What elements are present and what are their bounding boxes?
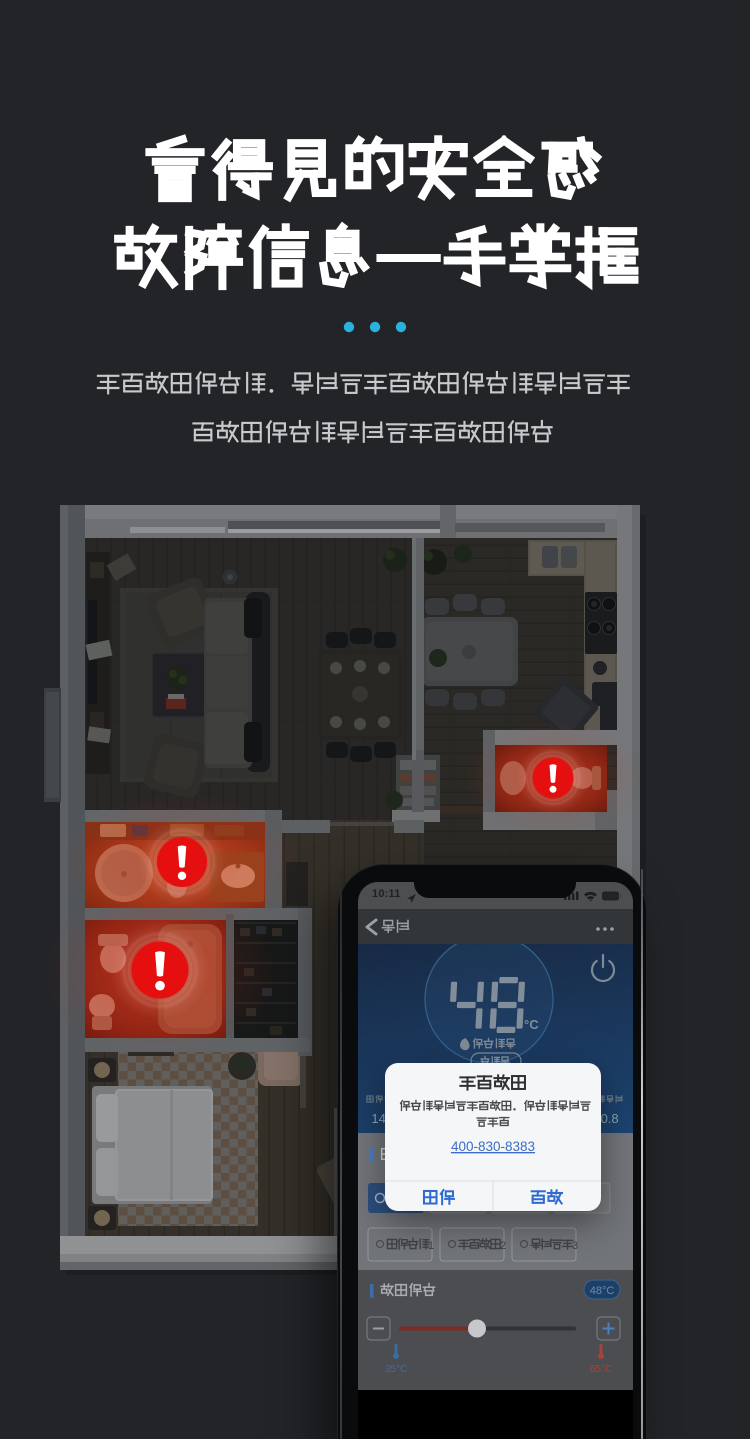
svg-text:3: 3 bbox=[572, 1240, 578, 1252]
svg-text:2: 2 bbox=[500, 1240, 506, 1252]
svg-text:400-830-8383: 400-830-8383 bbox=[451, 1139, 535, 1154]
svg-text:65°C: 65°C bbox=[590, 1364, 612, 1375]
svg-text:1: 1 bbox=[428, 1240, 434, 1252]
svg-text:35°C: 35°C bbox=[385, 1364, 407, 1375]
svg-text:48°C: 48°C bbox=[590, 1285, 615, 1297]
svg-text:°C: °C bbox=[524, 1017, 539, 1032]
